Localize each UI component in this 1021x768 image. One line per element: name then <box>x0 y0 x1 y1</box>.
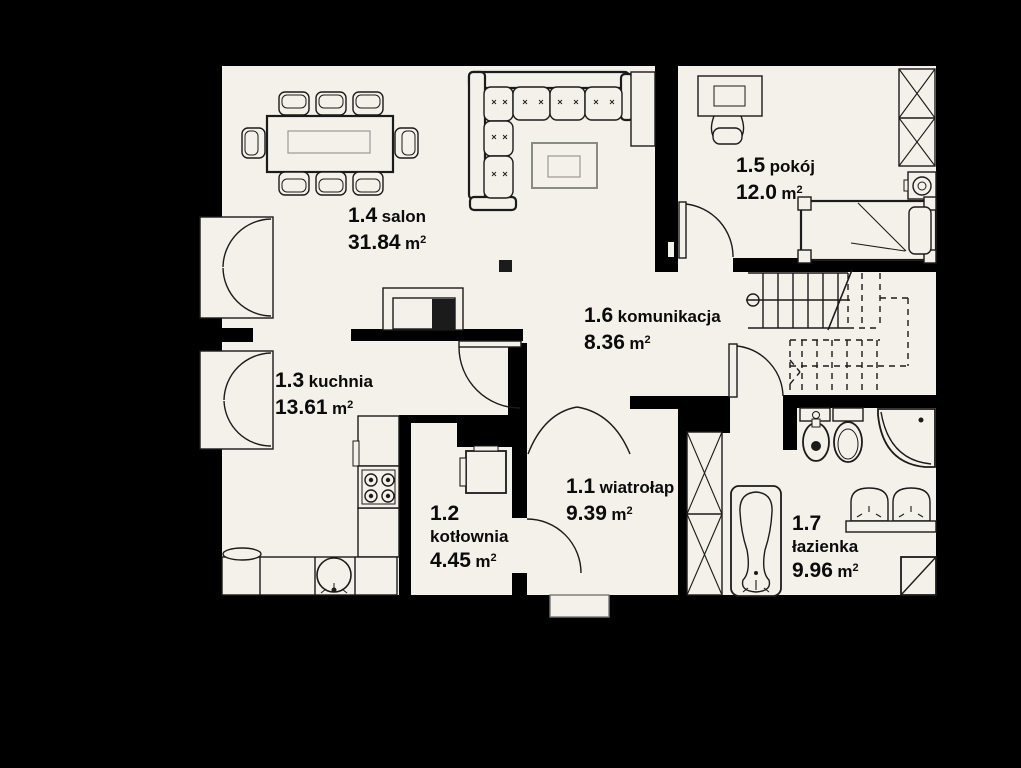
toilet-icon <box>833 408 863 462</box>
room-label-kuchnia: 1.3 kuchnia 13.61 m2 <box>275 369 373 421</box>
bed <box>798 197 936 263</box>
floor-plan-drawing <box>0 0 1021 768</box>
room-label-wiatrolap: 1.1 wiatrołap 9.39 m2 <box>566 475 674 527</box>
bidet-icon <box>800 408 830 461</box>
room-label-lazienka: 1.7 łazienka 9.96 m2 <box>792 513 859 583</box>
room-label-pokoj: 1.5 pokój 12.0 m2 <box>736 154 815 206</box>
floor-plan: 1.4 salon 31.84 m2 1.5 pokój 12.0 m2 1.6… <box>0 0 1021 768</box>
structural-column <box>499 260 512 272</box>
bathtub-icon <box>731 486 781 596</box>
room-label-komunikacja: 1.6 komunikacja 8.36 m2 <box>584 304 721 356</box>
tv-shelf <box>631 72 655 146</box>
fireplace <box>383 288 463 330</box>
entrance-step <box>550 595 609 617</box>
balcony-window-bottom <box>200 351 273 449</box>
wardrobe-pokoj-icon <box>899 69 935 166</box>
washing-machine-icon <box>901 557 936 595</box>
balcony-window-top <box>200 217 273 318</box>
boiler-icon <box>460 446 506 493</box>
stove-icon <box>358 466 399 508</box>
room-label-salon: 1.4 salon 31.84 m2 <box>348 204 426 256</box>
nightstand-lamp <box>904 172 936 199</box>
room-label-kotlownia: 1.2 kotłownia 4.45 m2 <box>430 503 508 573</box>
desk <box>698 76 762 116</box>
wardrobe-wiatrolap-icon <box>687 432 722 595</box>
